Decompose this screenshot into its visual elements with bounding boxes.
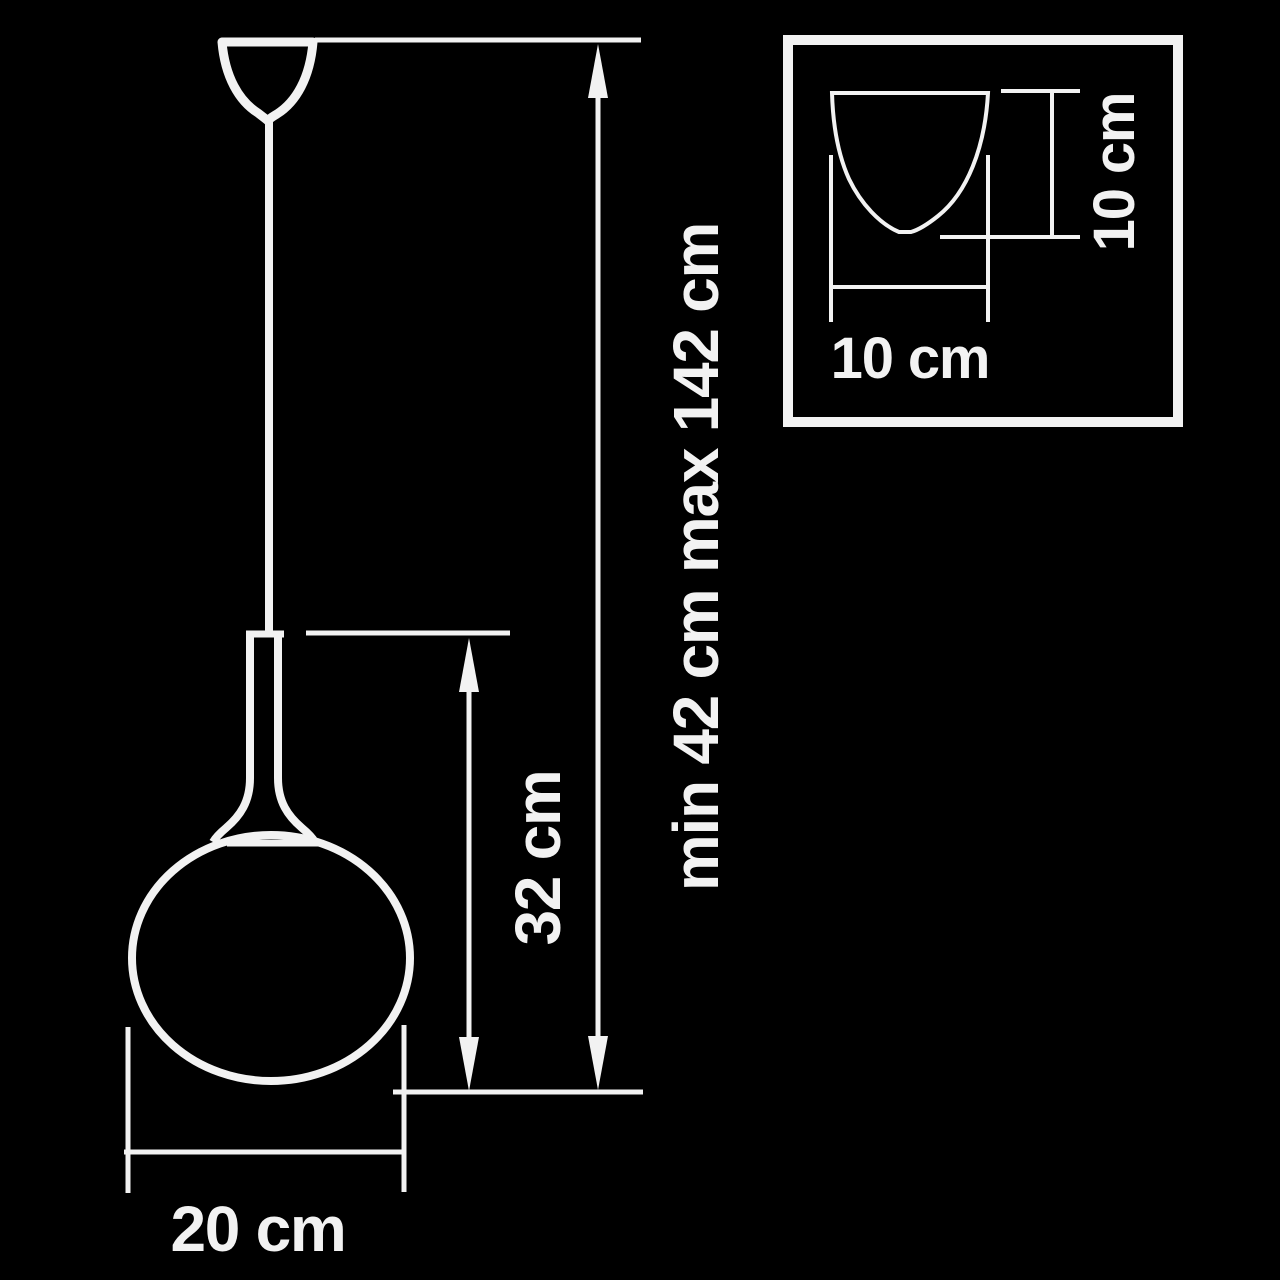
arrow-down-icon <box>459 1037 479 1091</box>
canopy-height-label: 10 cm <box>1086 93 1144 252</box>
dimension-lines <box>124 40 643 1193</box>
canopy-cup-detail-icon <box>832 93 988 232</box>
arrow-up-icon <box>588 44 608 98</box>
shade-diameter-label: 20 cm <box>170 1197 345 1261</box>
glass-globe-shade <box>132 835 410 1081</box>
arrow-down-icon <box>588 1036 608 1090</box>
canopy-width-label: 10 cm <box>831 330 990 388</box>
body-height-label: 32 cm <box>506 770 570 945</box>
suspension-height-label: min 42 cm max 142 cm <box>664 223 728 891</box>
lamp-neck-left-wall <box>213 634 250 842</box>
dimension-drawing: min 42 cm max 142 cm 32 cm 20 cm 10 cm 1… <box>0 0 1280 1280</box>
arrow-up-icon <box>459 638 479 692</box>
ceiling-canopy-icon <box>222 42 313 121</box>
lamp-neck-right-wall <box>278 634 315 842</box>
pendant-lamp <box>132 42 410 1081</box>
